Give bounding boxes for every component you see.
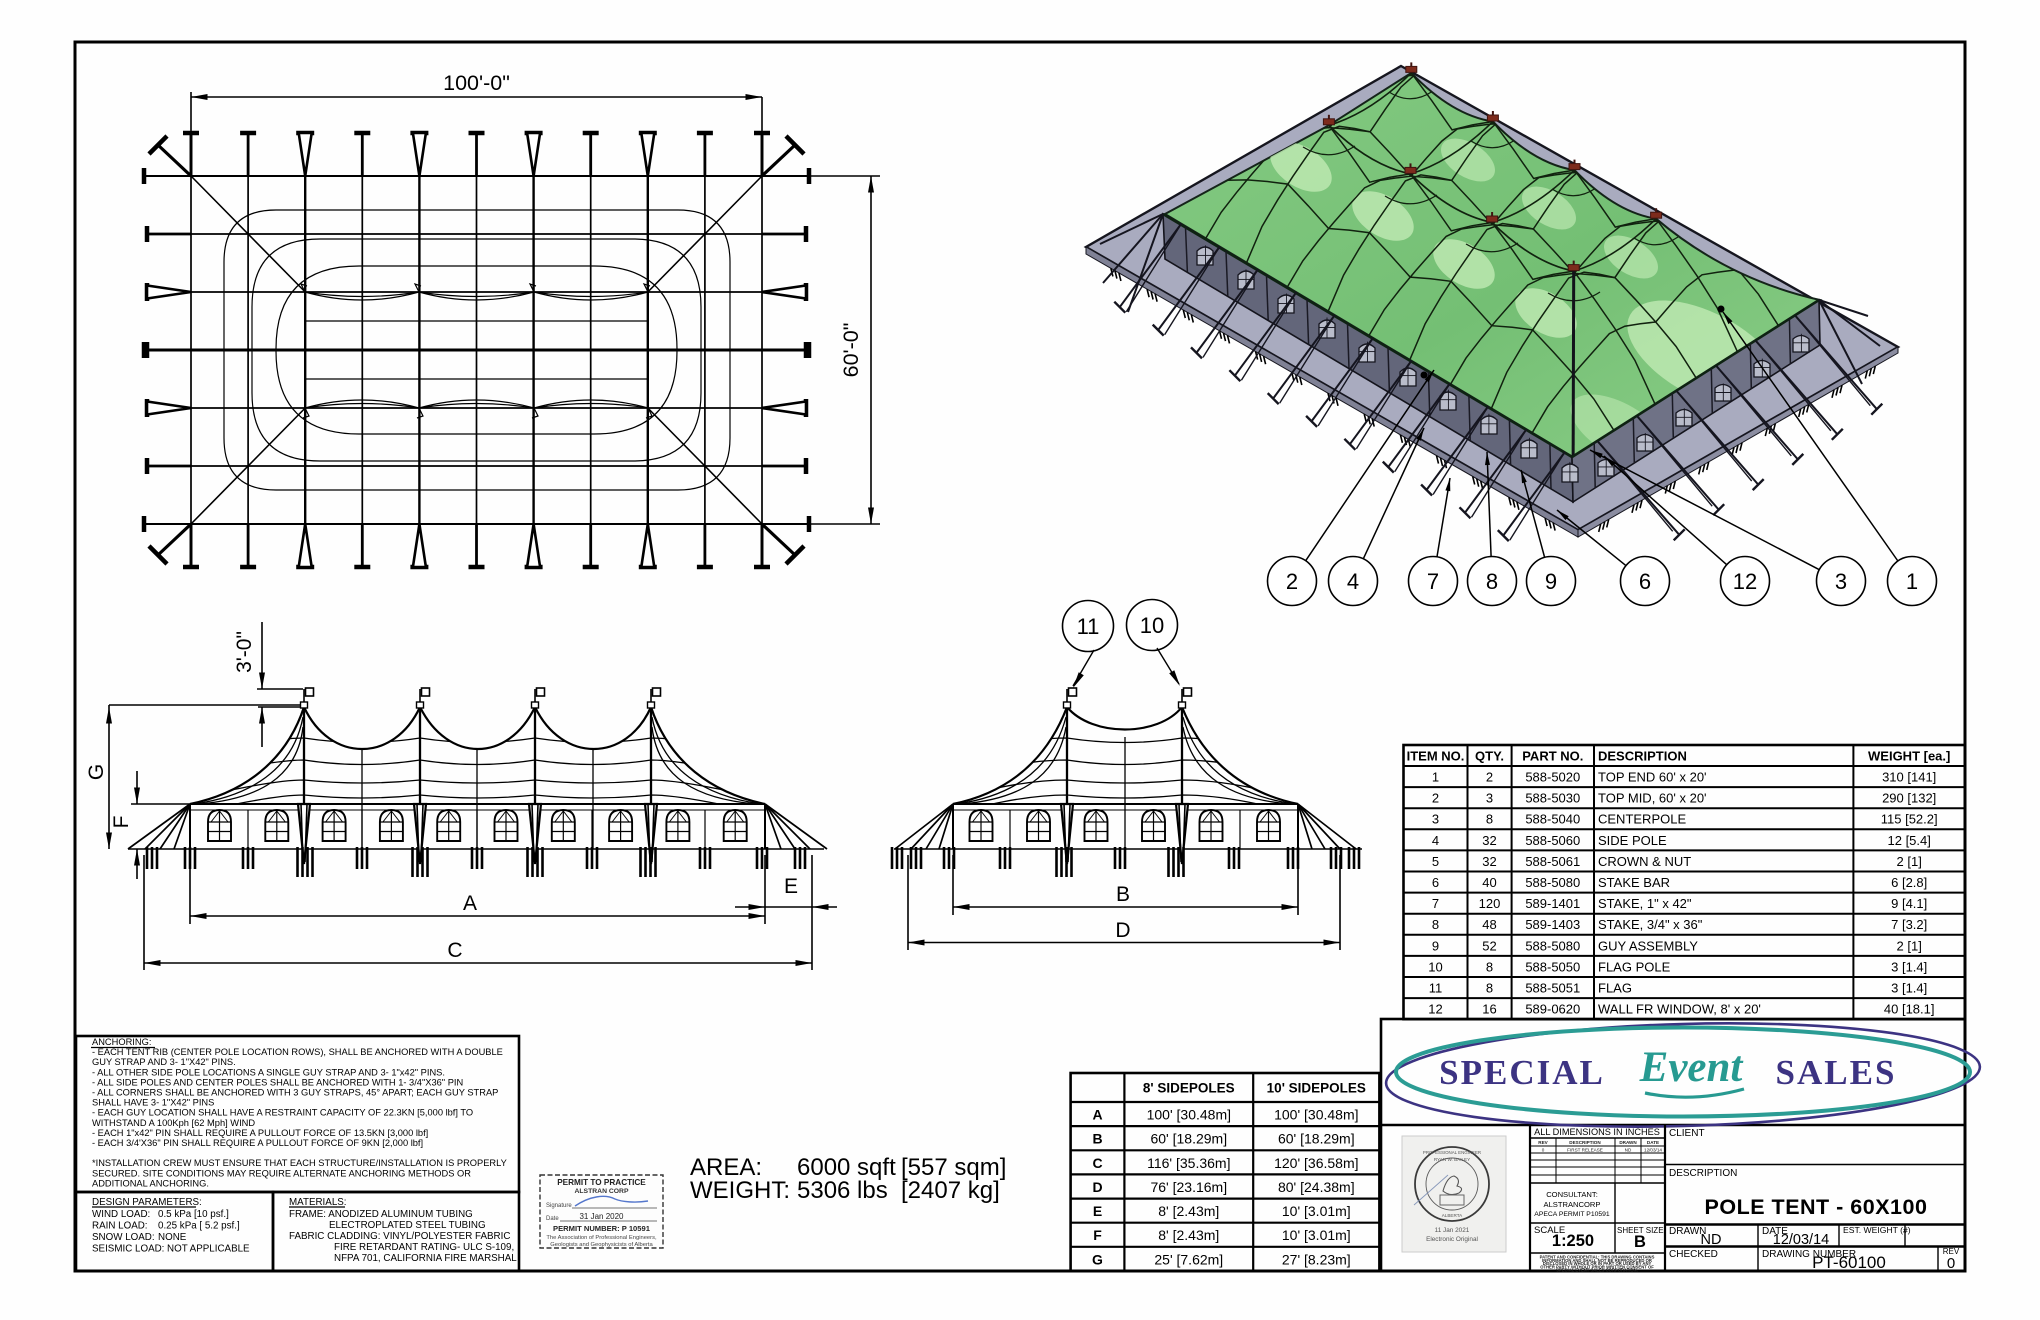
svg-text:- EACH TENT RIB (CENTER POLE L: - EACH TENT RIB (CENTER POLE LOCATION RO… xyxy=(92,1047,503,1057)
svg-text:290 [132]: 290 [132] xyxy=(1882,791,1936,806)
svg-text:- ALL OTHER SIDE POLE LOCATION: - ALL OTHER SIDE POLE LOCATIONS A SINGLE… xyxy=(92,1067,445,1077)
svg-text:9 [4.1]: 9 [4.1] xyxy=(1891,896,1927,911)
svg-text:120: 120 xyxy=(1479,896,1501,911)
svg-text:3 [1.4]: 3 [1.4] xyxy=(1891,981,1927,996)
svg-text:12: 12 xyxy=(1733,569,1757,594)
svg-text:WALL FR WINDOW, 8' x 20': WALL FR WINDOW, 8' x 20' xyxy=(1598,1002,1761,1017)
svg-text:CROWN & NUT: CROWN & NUT xyxy=(1598,854,1691,869)
svg-text:Electronic Original: Electronic Original xyxy=(1426,1236,1478,1243)
svg-text:27' [8.23m]: 27' [8.23m] xyxy=(1282,1251,1351,1267)
svg-text:10: 10 xyxy=(1428,959,1442,974)
svg-text:A: A xyxy=(1092,1107,1102,1123)
svg-text:- EACH GUY LOCATION SHALL HAVE: - EACH GUY LOCATION SHALL HAVE A RESTRAI… xyxy=(92,1108,473,1118)
svg-text:F: F xyxy=(1093,1227,1102,1243)
svg-text:0: 0 xyxy=(1542,1148,1545,1153)
svg-text:8: 8 xyxy=(1486,959,1493,974)
svg-text:*INSTALLATION CREW MUST ENSURE: *INSTALLATION CREW MUST ENSURE THAT EACH… xyxy=(92,1158,507,1168)
svg-text:F: F xyxy=(110,816,133,829)
svg-text:120' [36.58m]: 120' [36.58m] xyxy=(1274,1155,1358,1171)
svg-text:588-5051: 588-5051 xyxy=(1525,981,1580,996)
svg-text:ANCHORING:: ANCHORING: xyxy=(92,1037,151,1047)
svg-text:WEIGHT:: WEIGHT: xyxy=(690,1177,790,1204)
svg-text:STAKE, 3/4" x 36": STAKE, 3/4" x 36" xyxy=(1598,917,1703,932)
svg-text:QTY.: QTY. xyxy=(1475,749,1504,764)
svg-text:[2407 kg]: [2407 kg] xyxy=(901,1177,1000,1204)
svg-text:8' SIDEPOLES: 8' SIDEPOLES xyxy=(1143,1081,1235,1096)
svg-text:52: 52 xyxy=(1482,938,1496,953)
svg-text:- ALL SIDE POLES AND CENTER PO: - ALL SIDE POLES AND CENTER POLES SHALL … xyxy=(92,1077,463,1087)
svg-text:60'-0": 60'-0" xyxy=(839,323,863,378)
svg-text:ND: ND xyxy=(1701,1232,1722,1248)
svg-text:6: 6 xyxy=(1639,569,1651,594)
svg-text:10' SIDEPOLES: 10' SIDEPOLES xyxy=(1267,1081,1366,1096)
svg-text:3: 3 xyxy=(1835,569,1847,594)
svg-text:CENTERPOLE: CENTERPOLE xyxy=(1598,812,1686,827)
svg-text:115 [52.2]: 115 [52.2] xyxy=(1881,812,1938,827)
svg-text:2: 2 xyxy=(1286,569,1298,594)
svg-text:C: C xyxy=(1092,1155,1102,1171)
svg-text:SNOW LOAD:: SNOW LOAD: xyxy=(92,1232,155,1243)
svg-text:11: 11 xyxy=(1429,981,1443,996)
svg-text:SPECIAL: SPECIAL xyxy=(1439,1053,1605,1092)
svg-text:589-1403: 589-1403 xyxy=(1525,917,1580,932)
svg-text:- EACH 1"x42" PIN SHALL REQUIR: - EACH 1"x42" PIN SHALL REQUIRE A PULLOU… xyxy=(92,1128,428,1138)
svg-text:Geologists and Geophysicists o: Geologists and Geophysicists of Alberta xyxy=(550,1242,653,1248)
svg-text:3 [1.4]: 3 [1.4] xyxy=(1891,959,1927,974)
svg-text:40 [18.1]: 40 [18.1] xyxy=(1884,1002,1935,1017)
svg-text:ELECTROPLATED STEEL TUBING: ELECTROPLATED STEEL TUBING xyxy=(329,1220,486,1231)
svg-text:3'-0": 3'-0" xyxy=(233,631,256,673)
svg-text:588-5050: 588-5050 xyxy=(1525,959,1580,974)
svg-text:588-5020: 588-5020 xyxy=(1525,770,1580,785)
svg-text:6: 6 xyxy=(1432,875,1439,890)
svg-text:NOT APPLICABLE: NOT APPLICABLE xyxy=(167,1244,250,1255)
svg-text:G: G xyxy=(85,764,108,780)
svg-text:MATERIALS:: MATERIALS: xyxy=(289,1197,347,1208)
svg-text:ALSTRANCORP: ALSTRANCORP xyxy=(1544,1200,1601,1209)
svg-text:C: C xyxy=(447,939,462,962)
svg-text:100' [30.48m]: 100' [30.48m] xyxy=(1274,1107,1358,1123)
svg-text:Signature: Signature xyxy=(546,1203,572,1209)
svg-text:DRAWN: DRAWN xyxy=(1619,1140,1637,1145)
svg-text:Date: Date xyxy=(546,1216,559,1222)
svg-text:588-5060: 588-5060 xyxy=(1525,833,1580,848)
svg-text:588-5040: 588-5040 xyxy=(1525,812,1580,827)
svg-text:588-5061: 588-5061 xyxy=(1525,854,1580,869)
svg-text:12: 12 xyxy=(1428,1002,1442,1017)
svg-text:REV: REV xyxy=(1538,1140,1548,1145)
svg-text:PERMIT NUMBER: P 10591: PERMIT NUMBER: P 10591 xyxy=(553,1224,651,1233)
svg-text:- EACH 3/4'X36" PIN SHALL REQU: - EACH 3/4'X36" PIN SHALL REQUIRE A PULL… xyxy=(92,1138,423,1148)
svg-text:3: 3 xyxy=(1432,812,1439,827)
svg-text:ALSTRAN CORP: ALSTRAN CORP xyxy=(575,1188,629,1195)
svg-text:DESCRIPTION: DESCRIPTION xyxy=(1598,749,1687,764)
svg-text:32: 32 xyxy=(1482,854,1496,869)
svg-text:E: E xyxy=(1093,1203,1102,1219)
svg-text:10: 10 xyxy=(1140,613,1164,638)
svg-text:CHECKED: CHECKED xyxy=(1669,1249,1718,1260)
svg-text:POLE TENT - 60X100: POLE TENT - 60X100 xyxy=(1705,1195,1928,1219)
svg-text:FIRST RELEASE: FIRST RELEASE xyxy=(1567,1148,1603,1153)
svg-text:NFPA 701, CALIFORNIA FIRE MAR: NFPA 701, CALIFORNIA FIRE MARSHAL xyxy=(334,1253,517,1264)
svg-text:EST. WEIGHT (#): EST. WEIGHT (#) xyxy=(1843,1225,1911,1235)
svg-text:8' [2.43m]: 8' [2.43m] xyxy=(1158,1203,1219,1219)
svg-text:9: 9 xyxy=(1545,569,1557,594)
svg-text:2 [1]: 2 [1] xyxy=(1897,938,1922,953)
svg-text:76' [23.16m]: 76' [23.16m] xyxy=(1150,1179,1227,1195)
svg-text:0.5 kPa [10 psf.]: 0.5 kPa [10 psf.] xyxy=(158,1209,229,1220)
svg-text:D: D xyxy=(1115,919,1130,942)
svg-text:589-0620: 589-0620 xyxy=(1525,1002,1580,1017)
svg-text:- ALL CORNERS SHALL BE ANCHORE: - ALL CORNERS SHALL BE ANCHORED WITH 3 G… xyxy=(92,1088,498,1098)
svg-text:12/03/14: 12/03/14 xyxy=(1773,1232,1829,1248)
svg-text:5306 lbs: 5306 lbs xyxy=(797,1177,888,1204)
svg-text:ADDITIONAL ANCHORING.: ADDITIONAL ANCHORING. xyxy=(92,1178,209,1188)
svg-text:DESCRIPTION: DESCRIPTION xyxy=(1569,1140,1601,1145)
svg-text:PT-60100: PT-60100 xyxy=(1812,1253,1886,1272)
svg-text:FABRIC CLADDING: VINYL/POLYEST: FABRIC CLADDING: VINYL/POLYESTER FABRIC xyxy=(289,1231,510,1242)
svg-text:ALL DIMENSIONS IN INCHES: ALL DIMENSIONS IN INCHES xyxy=(1534,1127,1660,1137)
svg-text:ND: ND xyxy=(1625,1148,1632,1153)
svg-text:D: D xyxy=(1092,1179,1102,1195)
svg-text:8: 8 xyxy=(1486,981,1493,996)
svg-text:E: E xyxy=(784,875,798,898)
svg-text:588-5030: 588-5030 xyxy=(1525,791,1580,806)
svg-text:100' [30.48m]: 100' [30.48m] xyxy=(1147,1107,1231,1123)
svg-text:ALBERTA: ALBERTA xyxy=(1442,1213,1463,1218)
svg-text:STAKE, 1" x 42": STAKE, 1" x 42" xyxy=(1598,896,1692,911)
svg-text:12/03/14: 12/03/14 xyxy=(1644,1148,1662,1153)
svg-text:4: 4 xyxy=(1347,569,1359,594)
svg-text:WEIGHT [ea.]: WEIGHT [ea.] xyxy=(1868,749,1950,764)
svg-text:0.25 kPa [ 5.2 psf.]: 0.25 kPa [ 5.2 psf.] xyxy=(158,1221,240,1232)
svg-text:12 [5.4]: 12 [5.4] xyxy=(1888,833,1931,848)
svg-text:8: 8 xyxy=(1486,812,1493,827)
svg-text:DESCRIPTION: DESCRIPTION xyxy=(1669,1168,1737,1179)
svg-text:310 [141]: 310 [141] xyxy=(1882,770,1936,785)
svg-text:A: A xyxy=(463,892,477,915)
svg-text:GUY STRAP AND 3- 1"X42" PINS.: GUY STRAP AND 3- 1"X42" PINS. xyxy=(92,1057,236,1067)
svg-text:11 Jan 2021: 11 Jan 2021 xyxy=(1435,1227,1470,1234)
svg-text:16: 16 xyxy=(1482,1002,1496,1017)
svg-text:48: 48 xyxy=(1482,917,1496,932)
svg-text:CONSULTANT:: CONSULTANT: xyxy=(1546,1190,1598,1199)
svg-text:116' [35.36m]: 116' [35.36m] xyxy=(1147,1155,1230,1171)
svg-text:NONE: NONE xyxy=(158,1232,187,1243)
svg-text:5: 5 xyxy=(1432,854,1439,869)
svg-text:WIND LOAD:: WIND LOAD: xyxy=(92,1209,150,1220)
svg-text:25' [7.62m]: 25' [7.62m] xyxy=(1154,1251,1223,1267)
svg-text:STAKE BAR: STAKE BAR xyxy=(1598,875,1670,890)
svg-text:APECA PERMIT P10591: APECA PERMIT P10591 xyxy=(1534,1211,1610,1218)
svg-text:7 [3.2]: 7 [3.2] xyxy=(1891,917,1927,932)
svg-text:10' [3.01m]: 10' [3.01m] xyxy=(1282,1203,1351,1219)
svg-text:2: 2 xyxy=(1486,770,1493,785)
svg-text:Event: Event xyxy=(1639,1044,1745,1091)
svg-text:RAIN LOAD:: RAIN LOAD: xyxy=(92,1221,148,1232)
svg-text:589-1401: 589-1401 xyxy=(1525,896,1580,911)
svg-text:60' [18.29m]: 60' [18.29m] xyxy=(1150,1131,1227,1147)
svg-text:10' [3.01m]: 10' [3.01m] xyxy=(1282,1227,1351,1243)
svg-text:1:250: 1:250 xyxy=(1552,1232,1594,1250)
svg-text:B: B xyxy=(1092,1131,1102,1147)
svg-text:B: B xyxy=(1634,1233,1646,1251)
svg-text:DATE: DATE xyxy=(1647,1140,1659,1145)
svg-text:SEISMIC LOAD:: SEISMIC LOAD: xyxy=(92,1244,164,1255)
svg-text:31 Jan 2020: 31 Jan 2020 xyxy=(579,1212,624,1221)
svg-text:100'-0": 100'-0" xyxy=(443,71,510,95)
svg-text:DESIGN PARAMETERS:: DESIGN PARAMETERS: xyxy=(92,1197,202,1208)
svg-text:WITHSTAND A 100Kph [62 Mph] WI: WITHSTAND A 100Kph [62 Mph] WIND xyxy=(92,1118,255,1128)
svg-text:1: 1 xyxy=(1432,770,1439,785)
svg-text:PERMIT TO PRACTICE: PERMIT TO PRACTICE xyxy=(557,1178,646,1187)
svg-text:G: G xyxy=(1092,1251,1103,1267)
svg-text:GUY ASSEMBLY: GUY ASSEMBLY xyxy=(1598,938,1698,953)
svg-text:CLIENT: CLIENT xyxy=(1669,1128,1705,1139)
svg-text:SALES: SALES xyxy=(1776,1053,1897,1092)
svg-text:7: 7 xyxy=(1427,569,1439,594)
svg-text:PROFESSIONAL ENGINEER: PROFESSIONAL ENGINEER xyxy=(1423,1150,1481,1155)
svg-text:40: 40 xyxy=(1482,875,1496,890)
svg-text:2 [1]: 2 [1] xyxy=(1897,854,1922,869)
svg-text:FRAME: ANODIZED ALUMINUM TUBIN: FRAME: ANODIZED ALUMINUM TUBING xyxy=(289,1209,473,1220)
svg-text:SIDE POLE: SIDE POLE xyxy=(1598,833,1667,848)
svg-text:8' [2.43m]: 8' [2.43m] xyxy=(1158,1227,1219,1243)
svg-text:3: 3 xyxy=(1486,791,1493,806)
svg-text:2: 2 xyxy=(1432,791,1439,806)
svg-text:7: 7 xyxy=(1432,896,1439,911)
svg-text:60' [18.29m]: 60' [18.29m] xyxy=(1278,1131,1355,1147)
svg-text:8: 8 xyxy=(1486,569,1498,594)
svg-text:RYAN W. BAILEY: RYAN W. BAILEY xyxy=(1434,1157,1470,1162)
svg-text:FLAG: FLAG xyxy=(1598,981,1632,996)
svg-text:B: B xyxy=(1116,883,1130,906)
svg-text:8: 8 xyxy=(1432,917,1439,932)
svg-text:ITEM NO.: ITEM NO. xyxy=(1407,749,1465,764)
svg-text:PART NO.: PART NO. xyxy=(1522,749,1583,764)
svg-text:FIRE RETARDANT RATING- ULC S-1: FIRE RETARDANT RATING- ULC S-109, xyxy=(334,1242,514,1253)
svg-text:80' [24.38m]: 80' [24.38m] xyxy=(1278,1179,1355,1195)
svg-text:9: 9 xyxy=(1432,938,1439,953)
svg-text:1: 1 xyxy=(1906,569,1918,594)
svg-text:SPECIAL EVENT SALES CORPORATI: SPECIAL EVENT SALES CORPORATION. xyxy=(1556,1268,1638,1273)
svg-text:SHALL HAVE 3- 1"X42" PINS: SHALL HAVE 3- 1"X42" PINS xyxy=(92,1098,214,1108)
svg-text:TOP MID, 60' x 20': TOP MID, 60' x 20' xyxy=(1598,791,1707,806)
svg-text:SECURED. SITE CONDITIONS MAY: SECURED. SITE CONDITIONS MAY REQUIRE ALT… xyxy=(92,1168,471,1178)
svg-text:0: 0 xyxy=(1947,1255,1955,1272)
svg-text:The Association of Professiona: The Association of Professional Engineer… xyxy=(546,1235,657,1241)
svg-text:4: 4 xyxy=(1432,833,1439,848)
svg-text:11: 11 xyxy=(1077,614,1100,639)
svg-text:32: 32 xyxy=(1482,833,1496,848)
svg-text:588-5080: 588-5080 xyxy=(1525,938,1580,953)
svg-text:FLAG POLE: FLAG POLE xyxy=(1598,959,1671,974)
svg-text:TOP END 60' x 20': TOP END 60' x 20' xyxy=(1598,770,1707,785)
svg-text:6 [2.8]: 6 [2.8] xyxy=(1891,875,1927,890)
svg-text:588-5080: 588-5080 xyxy=(1525,875,1580,890)
